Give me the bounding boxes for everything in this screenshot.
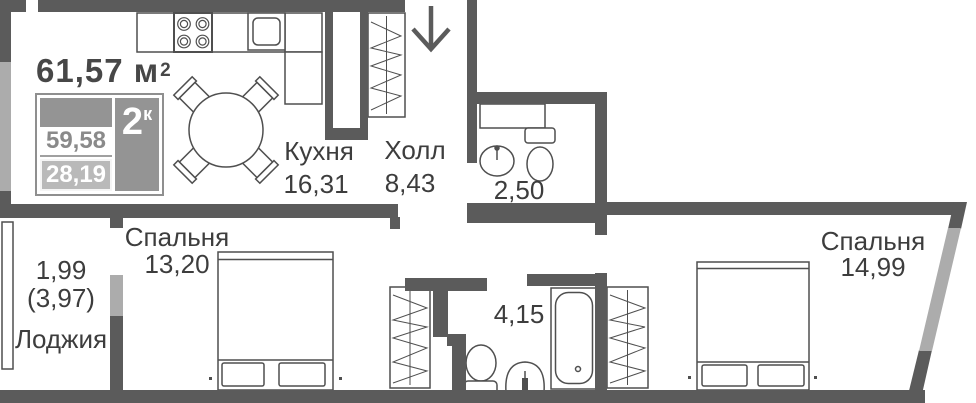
room-area-kitchen: 16,31 — [283, 171, 348, 197]
kitchen-window — [0, 62, 11, 191]
room-label-bedroom-right: Спальня — [821, 228, 925, 254]
bathroom-small-fixtures — [480, 104, 555, 181]
room-area-loggia: 1,99 — [36, 257, 87, 283]
wardrobe-corridor — [390, 287, 430, 388]
washbasin-small — [480, 146, 514, 176]
room-label-kitchen: Кухня — [284, 138, 354, 164]
entrance-arrow-icon — [413, 6, 449, 49]
room-area-bedroom-right: 14,99 — [840, 254, 905, 280]
badge-room-rect — [40, 98, 112, 127]
badge-rooms-superscript: к — [143, 104, 152, 124]
room-label-bedroom-left: Спальня — [125, 224, 229, 250]
dining-table — [189, 93, 263, 167]
washbasin-large — [506, 362, 544, 392]
total-area-label: 61,57 м2 — [36, 52, 172, 90]
room-area-loggia-full: (3,97) — [27, 285, 95, 311]
loggia-window — [2, 222, 13, 369]
total-area-superscript: 2 — [160, 60, 172, 81]
wardrobe-bedroom-right — [607, 287, 648, 388]
room-area-bathroom-small: 2,50 — [494, 177, 545, 203]
badge-left-column: 59,58 28,19 — [40, 98, 112, 191]
wardrobe-hall — [368, 13, 405, 117]
badge-area-kitchen: 28,19 — [40, 159, 112, 191]
stove — [174, 13, 212, 52]
apartment-info-badge: 59,58 28,19 2к — [35, 93, 164, 196]
kitchen-sink — [248, 13, 285, 50]
room-area-hall: 8,43 — [385, 170, 436, 196]
badge-area-living: 59,58 — [40, 127, 112, 157]
floor-plan: 61,57 м2 59,58 28,19 2к Кухня 16,31 Холл… — [0, 0, 976, 403]
bathroom-shelf — [480, 104, 545, 128]
room-area-bedroom-left: 13,20 — [144, 251, 209, 277]
room-area-bathroom-large: 4,15 — [494, 301, 545, 327]
bathtub — [551, 288, 597, 389]
loggia-partition-window — [110, 275, 123, 316]
bedroom-right-window — [919, 228, 961, 351]
toilet-small — [525, 128, 555, 181]
toilet-large — [464, 345, 497, 395]
room-label-loggia: Лоджия — [15, 326, 107, 352]
bed-left — [209, 252, 342, 390]
room-label-hall: Холл — [384, 137, 445, 163]
bed-right — [688, 262, 817, 390]
badge-rooms-count: 2к — [115, 98, 159, 191]
